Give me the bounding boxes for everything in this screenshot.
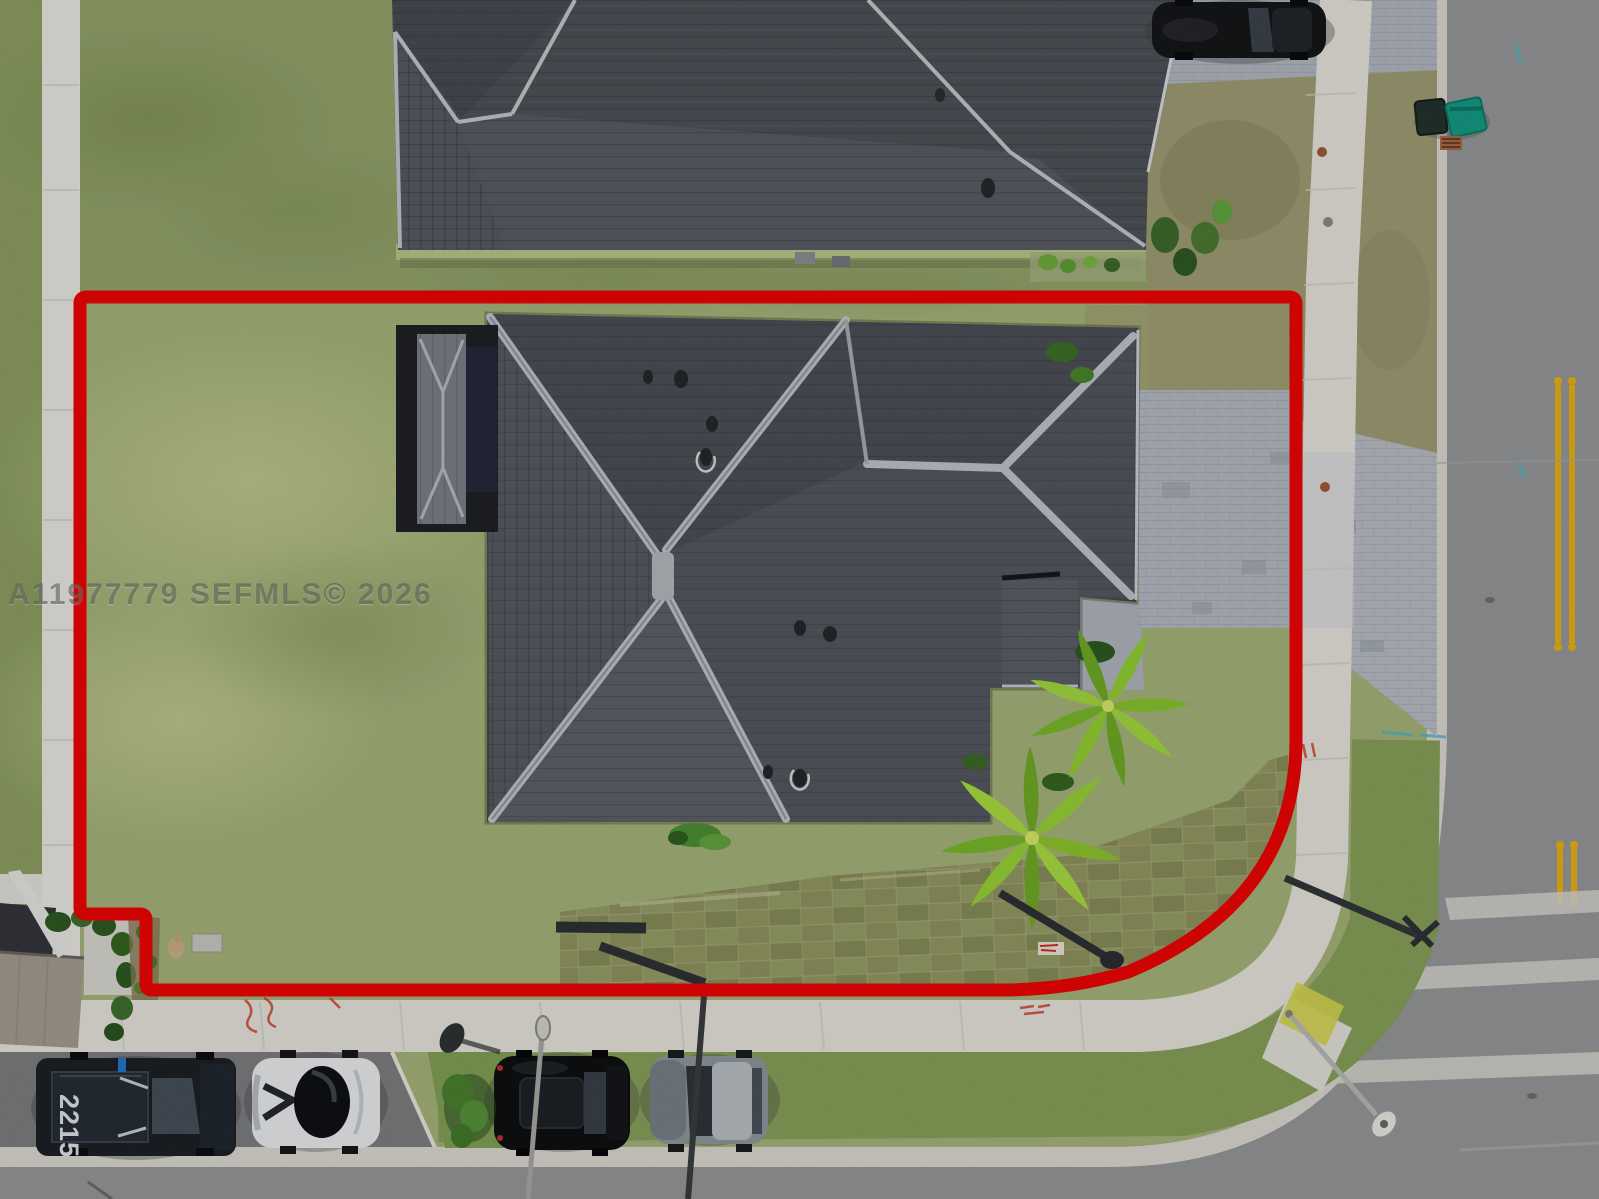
aerial-photo: 2215 [0,0,1599,1199]
photo-grain-overlay [0,0,1599,1199]
aerial-photo-canvas: 2215 [0,0,1599,1199]
